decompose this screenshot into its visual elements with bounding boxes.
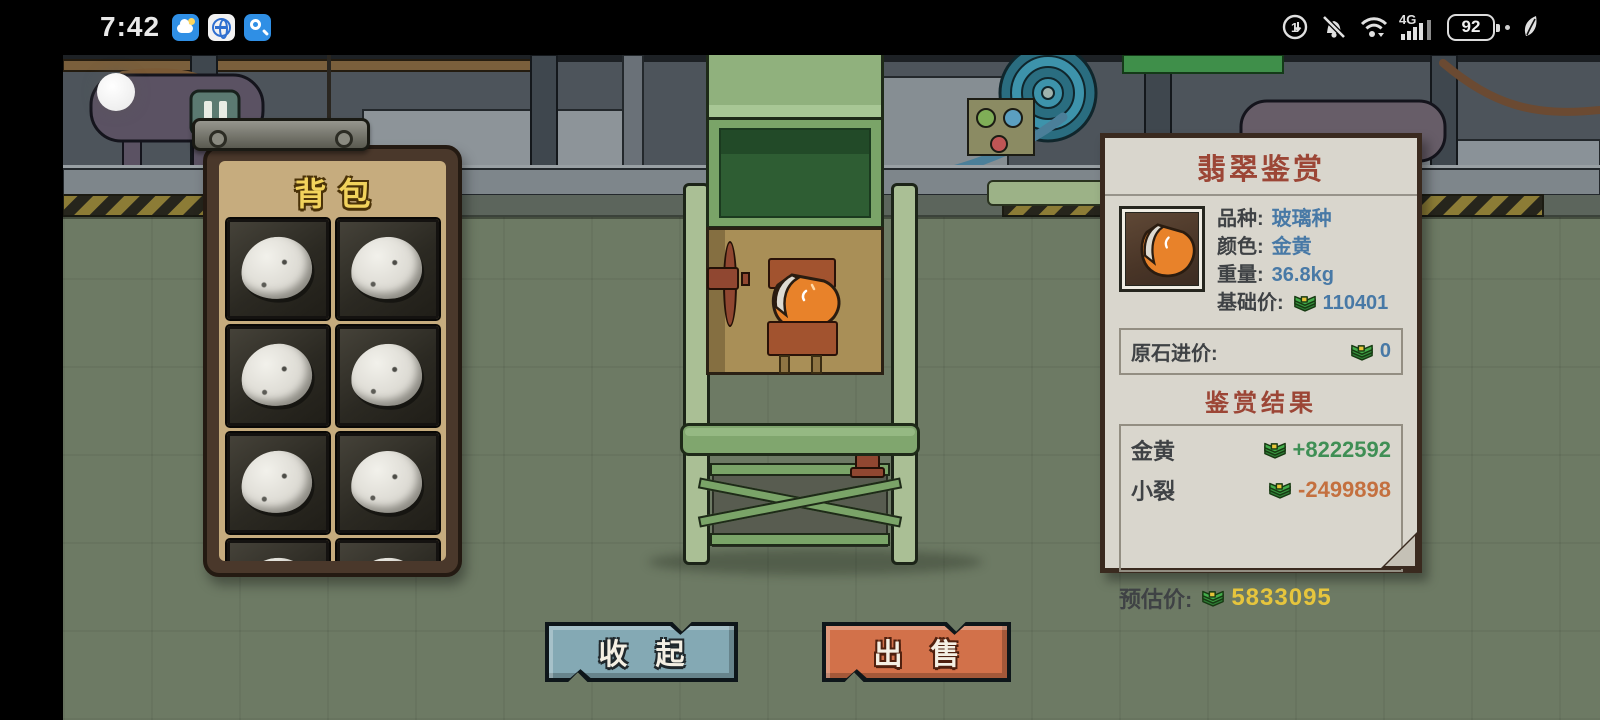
money-icon <box>1267 480 1293 500</box>
game-viewport: 背包 翡翠鉴赏 <box>63 55 1600 720</box>
machine-knob-flange <box>850 467 885 478</box>
raw-stone-item <box>238 554 315 561</box>
appraisal-title: 翡翠鉴赏 <box>1105 138 1417 196</box>
clamp-leg <box>811 355 822 374</box>
search-app-icon <box>244 14 271 41</box>
raw-stone-item <box>349 235 423 301</box>
raw-stone-item <box>237 339 316 410</box>
network-type-label: 4G <box>1399 12 1416 27</box>
purchase-price-box: 原石进价: 0 <box>1119 328 1403 375</box>
raw-stone-item <box>348 555 424 561</box>
machine-crank-arm <box>707 267 739 290</box>
machine-right-pillar <box>891 183 918 565</box>
collapse-button[interactable]: 收 起 <box>545 622 738 682</box>
backpack-slot[interactable] <box>337 326 439 426</box>
field-variety: 品种: 玻璃种 <box>1217 206 1403 232</box>
result-row-golden: 金黄 +8222592 <box>1131 434 1391 466</box>
backpack-slot[interactable] <box>337 219 439 319</box>
results-section-title: 鉴赏结果 <box>1119 383 1403 418</box>
sell-button-label: 出 售 <box>863 631 969 673</box>
machine-hopper <box>706 117 884 229</box>
estimate-row: 预估价: 5833095 <box>1105 572 1417 624</box>
wifi-icon <box>1359 13 1389 41</box>
machine-rail-bottom <box>710 533 890 546</box>
backpack-title: 背包 <box>219 169 446 215</box>
mute-bell-icon <box>1319 13 1349 41</box>
clipboard-clip <box>192 118 370 151</box>
field-value: 玻璃种 <box>1272 206 1332 232</box>
result-value: +8222592 <box>1293 437 1392 463</box>
battery-percent: 92 <box>1462 17 1481 36</box>
machine-clamp-bottom <box>767 321 838 356</box>
raw-stone-item <box>238 233 315 302</box>
machine-hopper-opening <box>719 128 871 218</box>
battery-icon: 92 <box>1447 14 1495 41</box>
sell-button[interactable]: 出 售 <box>822 622 1011 682</box>
backpack-panel: 背包 <box>203 145 462 577</box>
field-value: 金黄 <box>1272 234 1312 260</box>
backpack-panel-inner: 背包 <box>219 161 446 561</box>
estimate-value: 5833095 <box>1231 584 1331 612</box>
backpack-slot[interactable] <box>227 219 329 319</box>
assistive-touch-ball[interactable] <box>97 73 135 111</box>
status-bar: 7:42 1 4G <box>0 0 1600 55</box>
results-box: 金黄 +8222592 小裂 <box>1119 424 1403 572</box>
appraisal-panel: 翡翠鉴赏 品种: <box>1100 133 1422 573</box>
raw-stone-item <box>238 447 316 517</box>
field-base-price: 基础价: 110401 <box>1217 290 1403 316</box>
purchase-value: 0 <box>1380 340 1391 363</box>
field-value: 110401 <box>1323 290 1389 316</box>
backpack-slot[interactable] <box>337 433 439 533</box>
result-value: -2499898 <box>1298 477 1391 503</box>
page-fold-icon <box>1385 536 1415 566</box>
field-label: 品种: <box>1217 206 1264 232</box>
collapse-button-label: 收 起 <box>588 631 694 673</box>
backpack-grid <box>227 219 439 561</box>
weather-app-icon <box>172 14 199 41</box>
data-saver-icon: 1 <box>1281 13 1309 41</box>
money-icon <box>1349 342 1375 362</box>
signal-bars-icon: 4G <box>1399 12 1437 42</box>
result-row-crack: 小裂 -2499898 <box>1131 474 1391 506</box>
separator-dot <box>1505 25 1510 30</box>
estimate-label: 预估价: <box>1119 582 1192 614</box>
money-icon <box>1262 440 1288 460</box>
backpack-slot[interactable] <box>227 540 329 561</box>
result-name: 小裂 <box>1131 474 1175 506</box>
field-weight: 重量: 36.8kg <box>1217 262 1403 288</box>
field-value: 36.8kg <box>1272 262 1334 288</box>
machine-crank-pin <box>741 272 750 286</box>
field-label: 基础价: <box>1217 290 1284 316</box>
backpack-slot[interactable] <box>227 433 329 533</box>
power-save-leaf-icon <box>1520 14 1542 40</box>
system-status-icons: 1 4G 92 <box>1281 12 1542 42</box>
item-image-frame <box>1119 206 1205 292</box>
raw-stone-item <box>350 450 423 514</box>
backpack-slot[interactable] <box>337 540 439 561</box>
result-name: 金黄 <box>1131 434 1175 466</box>
purchase-label: 原石进价: <box>1131 337 1218 366</box>
jade-item-image <box>1125 212 1199 286</box>
phone-screen: 7:42 1 4G <box>0 0 1600 720</box>
field-label: 重量: <box>1217 262 1264 288</box>
clock-time: 7:42 <box>100 11 160 43</box>
backpack-slot[interactable] <box>227 326 329 426</box>
notification-app-icons <box>172 14 271 41</box>
money-icon <box>1292 293 1318 313</box>
clipboard-string <box>327 55 331 121</box>
field-color: 颜色: 金黄 <box>1217 234 1403 260</box>
field-label: 颜色: <box>1217 234 1264 260</box>
money-icon <box>1200 588 1226 608</box>
raw-stone-item <box>349 342 424 409</box>
browser-app-icon <box>208 14 235 41</box>
clamp-leg <box>779 355 790 374</box>
machine-tabletop <box>680 423 920 456</box>
